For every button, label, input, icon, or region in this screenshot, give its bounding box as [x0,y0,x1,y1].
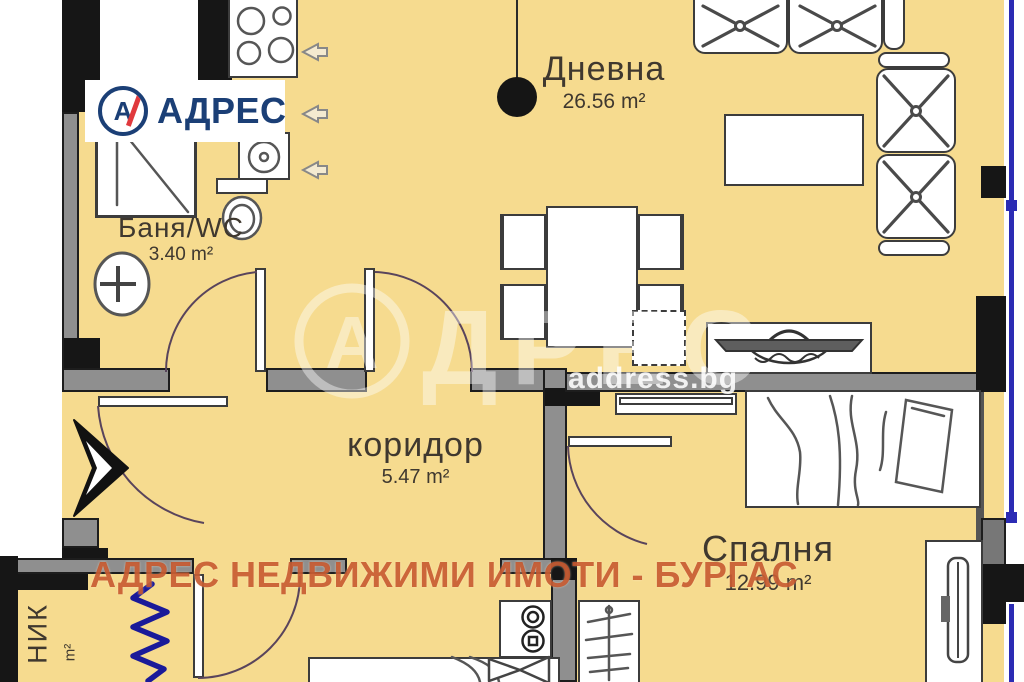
door-arc-bedroom [568,446,647,544]
floor-plan: А ДРЕС address.bg АДРЕС НЕДВИЖИМИ ИМОТИ … [0,0,1024,682]
sofa-x-pattern [703,6,948,232]
bed-sketch [768,396,952,505]
radiator-icon [941,558,968,662]
brand-logo-circle: А [98,86,148,136]
room-label-corridor: коридор 5.47 m² [328,428,503,488]
watermark-site: address.bg [568,362,738,396]
kitchen-sink-icon [249,142,279,172]
room-area: 26.56 m² [524,91,684,113]
room-name: Баня/WC [96,213,266,242]
brand-logo: А АДРЕС [85,80,285,142]
room-label-living: Дневна 26.56 m² [524,52,684,113]
room-label-bath: Баня/WC 3.40 m² [96,213,266,265]
room-label-closet-partial: НИК [23,582,54,682]
room-area: 3.40 m² [96,245,266,265]
cabinet-arrows-icon [303,44,327,178]
brand-logo-text: АДРЕС [157,90,287,132]
watermark-big-letter: А [325,301,378,384]
room-area: 5.47 m² [328,467,503,488]
entrance-arrow-icon [74,420,128,516]
wardrobe-hangers-icon [586,606,632,680]
watermark-line: АДРЕС НЕДВИЖИМИ ИМОТИ - БУРГАС [90,554,798,596]
room-name: коридор [328,428,503,464]
room-name: Дневна [524,52,684,88]
bowtie-icon [489,657,549,682]
radiator-zigzag-icon [133,584,167,681]
room-area-closet-partial: m² [62,623,79,682]
door-arc-bath [166,272,257,372]
stove-burners-icon [238,8,293,65]
burner-rings-icon [523,607,544,652]
